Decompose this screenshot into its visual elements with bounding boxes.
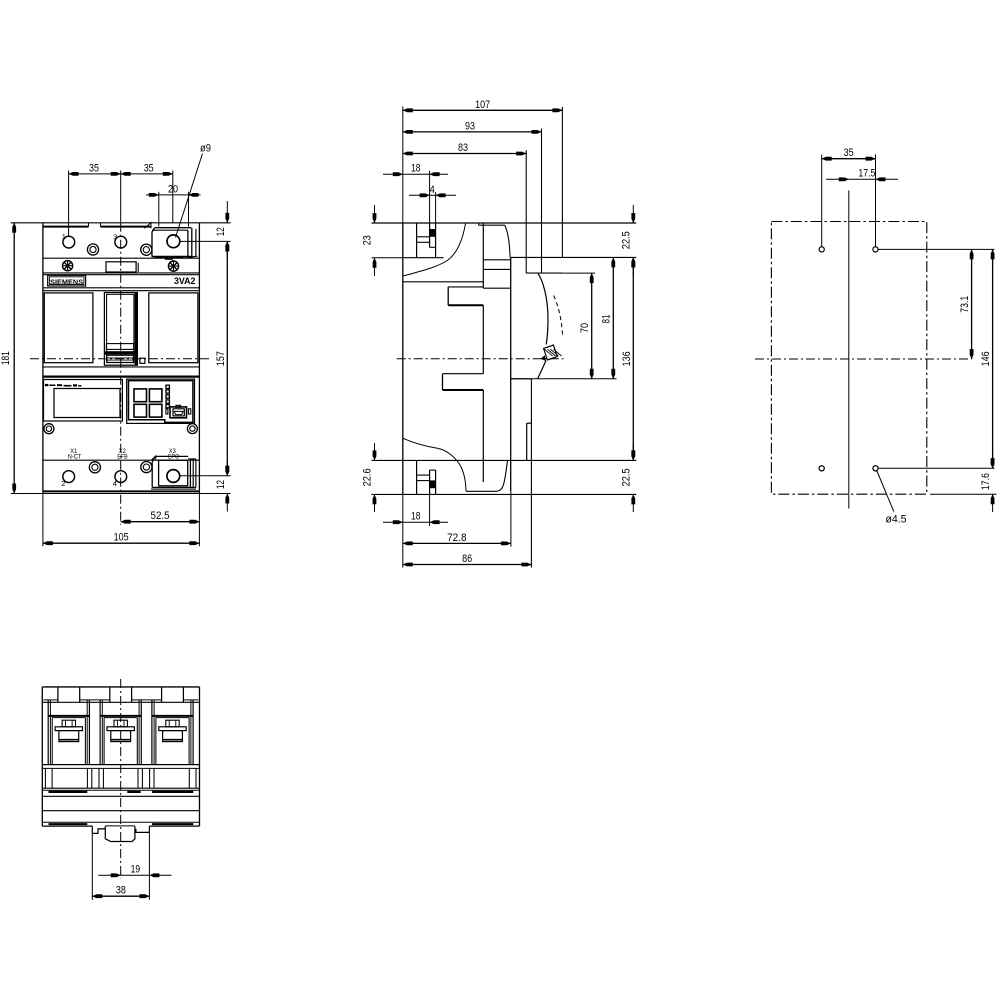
svg-text:81: 81	[601, 315, 613, 324]
svg-text:ø9: ø9	[200, 143, 211, 155]
svg-text:4: 4	[430, 184, 435, 196]
svg-text:35: 35	[144, 162, 154, 174]
svg-text:35: 35	[844, 147, 854, 159]
svg-text:17.5: 17.5	[858, 168, 875, 180]
svg-text:23: 23	[362, 235, 374, 245]
svg-text:70: 70	[579, 323, 591, 333]
svg-text:12: 12	[215, 227, 227, 236]
svg-text:52.5: 52.5	[151, 510, 170, 522]
svg-text:157: 157	[215, 351, 227, 366]
svg-text:1: 1	[62, 232, 66, 241]
svg-text:105: 105	[114, 532, 129, 544]
svg-text:83: 83	[458, 142, 468, 154]
svg-text:22.6: 22.6	[362, 468, 374, 486]
svg-text:136: 136	[621, 351, 633, 366]
svg-text:20: 20	[168, 183, 178, 195]
svg-text:N-CT: N-CT	[68, 455, 82, 461]
svg-text:18: 18	[411, 511, 421, 523]
svg-text:12: 12	[215, 480, 227, 489]
svg-text:22.5: 22.5	[621, 231, 633, 249]
svg-text:2: 2	[61, 479, 65, 488]
svg-text:EFB: EFB	[117, 455, 128, 461]
svg-text:72.8: 72.8	[447, 532, 467, 544]
svg-text:ø4.5: ø4.5	[886, 514, 907, 526]
svg-text:35: 35	[89, 162, 99, 174]
svg-text:22.5: 22.5	[621, 468, 633, 486]
svg-text:3VA2: 3VA2	[174, 276, 196, 287]
svg-text:181: 181	[0, 351, 12, 365]
svg-text:3: 3	[113, 233, 117, 242]
svg-text:4: 4	[113, 479, 117, 488]
svg-text:146: 146	[980, 351, 992, 366]
svg-text:18: 18	[411, 163, 421, 175]
svg-text:38: 38	[116, 885, 126, 897]
svg-text:17.6: 17.6	[980, 473, 992, 490]
svg-text:93: 93	[465, 120, 475, 132]
svg-text:SIEMENS: SIEMENS	[50, 279, 83, 286]
svg-text:19: 19	[131, 864, 141, 876]
svg-text:107: 107	[475, 99, 490, 111]
svg-text:73.1: 73.1	[959, 296, 971, 313]
svg-text:86: 86	[462, 553, 472, 565]
